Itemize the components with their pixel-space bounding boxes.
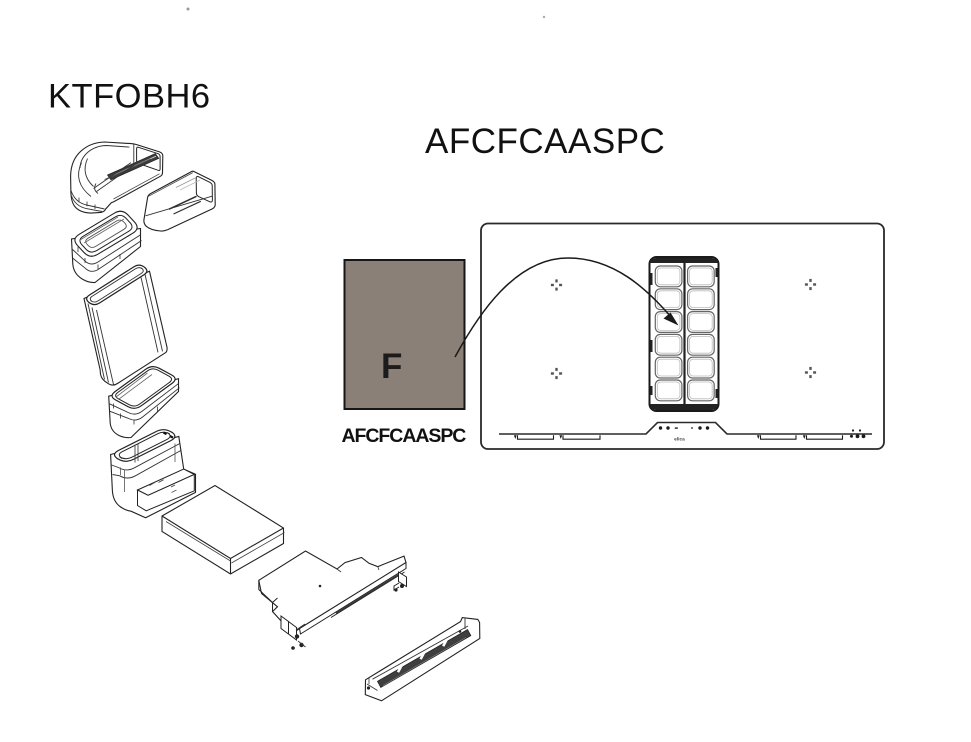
svg-text:AFCFCAASPC: AFCFCAASPC [342, 425, 467, 447]
svg-text:AFCFCAASPC: AFCFCAASPC [425, 122, 665, 161]
svg-text:elica: elica [674, 437, 685, 443]
svg-text:F: F [381, 347, 402, 386]
svg-text:KTFOBH6: KTFOBH6 [48, 78, 211, 116]
